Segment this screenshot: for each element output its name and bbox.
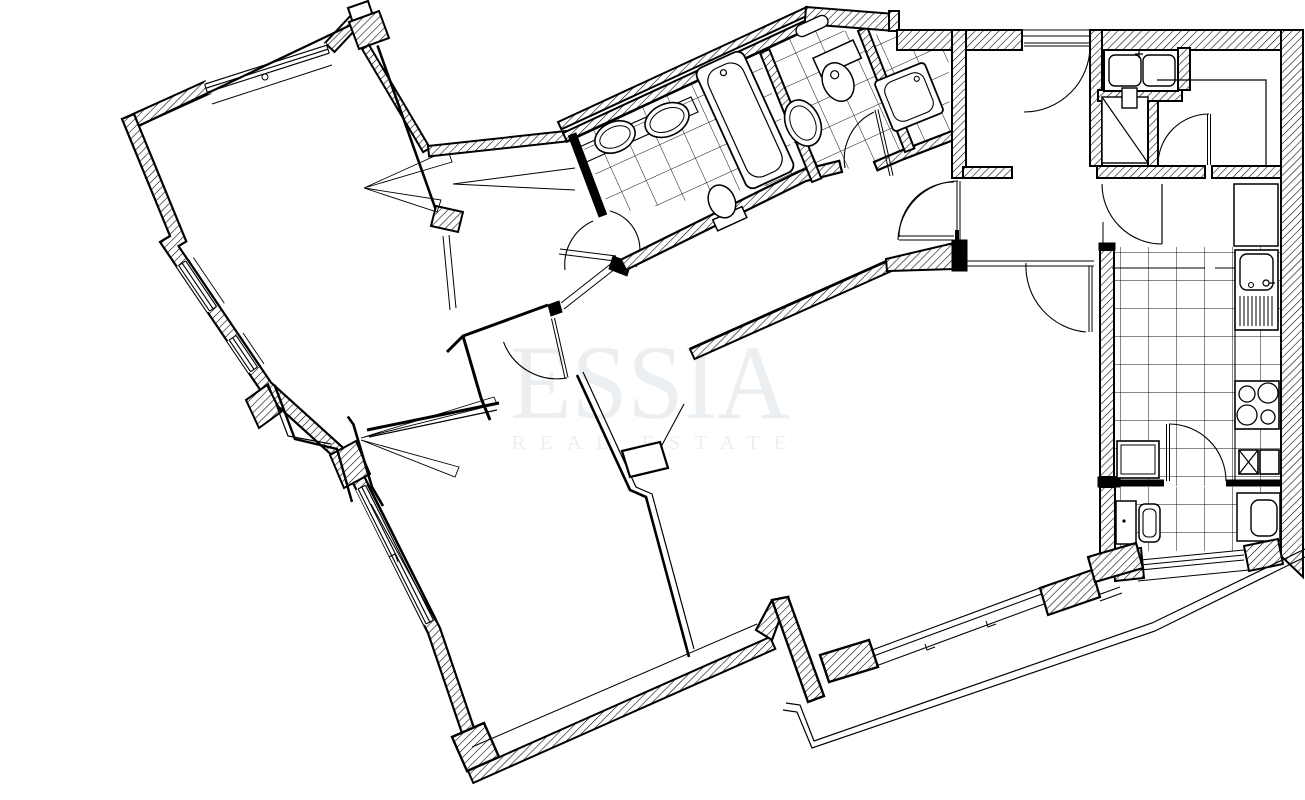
svg-text:ESSIA: ESSIA (510, 325, 790, 442)
